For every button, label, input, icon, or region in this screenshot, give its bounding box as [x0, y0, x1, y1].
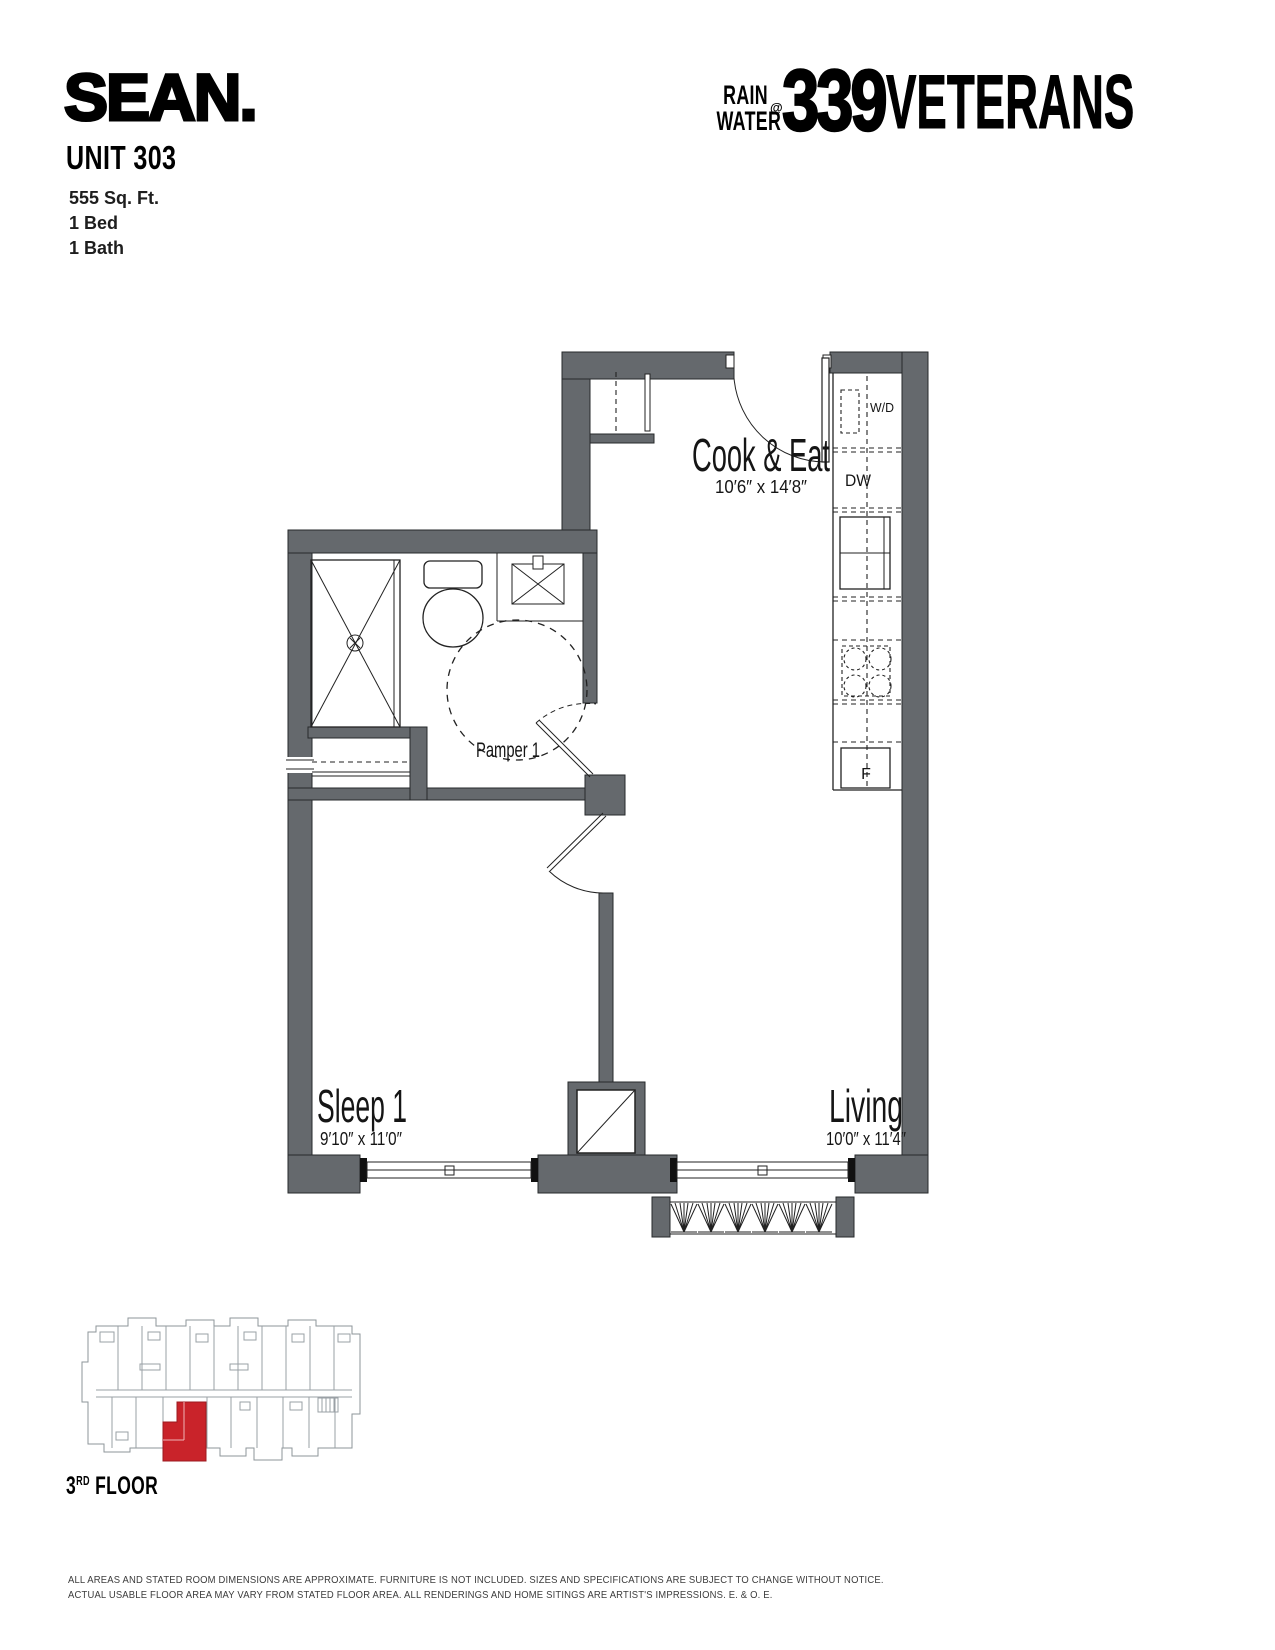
room-label-cook-eat: Cook & Eat — [692, 429, 830, 481]
floor-number: 3 — [66, 1472, 76, 1500]
cooktop — [842, 646, 891, 697]
fridge-label: F — [861, 766, 871, 783]
floor-word: FLOOR — [90, 1472, 158, 1500]
unit-baths: 1 Bath — [69, 236, 159, 261]
floor-plan: Pamper 1 — [270, 340, 942, 1240]
toilet — [423, 561, 483, 647]
living-window — [670, 1158, 855, 1182]
unit-details: 555 Sq. Ft. 1 Bed 1 Bath — [69, 186, 159, 261]
kitchen-sink — [840, 517, 890, 589]
floor-ordinal: RD — [76, 1473, 90, 1488]
building-logo-name: VETERANS — [886, 65, 1134, 141]
building-logo-water: WATER — [717, 108, 768, 134]
disclaimer-line-1: ALL AREAS AND STATED ROOM DIMENSIONS ARE… — [68, 1573, 884, 1588]
balcony-grate — [652, 1197, 854, 1237]
room-label-sleep: Sleep 1 — [317, 1080, 407, 1132]
room-dims-sleep: 9′10″ x 11′0″ — [320, 1129, 403, 1149]
side-window — [286, 757, 314, 773]
building-logo: RAIN WATER @ 339 VETERANS — [690, 68, 1160, 158]
dishwasher-label: DW — [845, 471, 871, 490]
floorplan-page: SEAN. RAIN WATER @ 339 VETERANS UNIT 303… — [0, 0, 1275, 1650]
brand-logo: SEAN. — [64, 64, 256, 130]
entry-closet — [616, 372, 650, 433]
fridge: F — [841, 748, 890, 788]
dishwasher: DW — [845, 471, 871, 490]
disclaimer-line-2: ACTUAL USABLE FLOOR AREA MAY VARY FROM S… — [68, 1588, 884, 1603]
unit-beds: 1 Bed — [69, 211, 159, 236]
room-label-living: Living — [829, 1080, 903, 1132]
key-plan-building — [82, 1318, 360, 1461]
vanity-sink — [497, 553, 583, 621]
unit-title: UNIT 303 — [66, 141, 176, 174]
room-dims-cook-eat: 10′6″ x 14′8″ — [715, 477, 808, 497]
bedroom-window — [360, 1158, 538, 1182]
bedroom-door — [547, 813, 606, 893]
building-logo-at: @ — [770, 100, 783, 115]
washer-dryer-label: W/D — [870, 400, 894, 415]
kitchen-column: W/D DW F — [833, 373, 902, 790]
building-logo-rainwater: RAIN WATER — [717, 82, 768, 134]
turning-circle: Pamper 1 — [447, 620, 587, 762]
floor-label: 3RD FLOOR — [66, 1474, 158, 1499]
building-logo-rain: RAIN — [717, 82, 768, 108]
room-dims-living: 10′0″ x 11′4″ — [826, 1129, 907, 1149]
key-plan — [60, 1270, 380, 1470]
shaft-window — [577, 1090, 635, 1153]
room-label-pamper: Pamper 1 — [476, 739, 540, 762]
disclaimer: ALL AREAS AND STATED ROOM DIMENSIONS ARE… — [68, 1573, 884, 1603]
unit-area: 555 Sq. Ft. — [69, 186, 159, 211]
building-logo-number: 339 — [782, 58, 885, 144]
shower — [311, 560, 400, 727]
bedroom-closet — [312, 762, 410, 776]
